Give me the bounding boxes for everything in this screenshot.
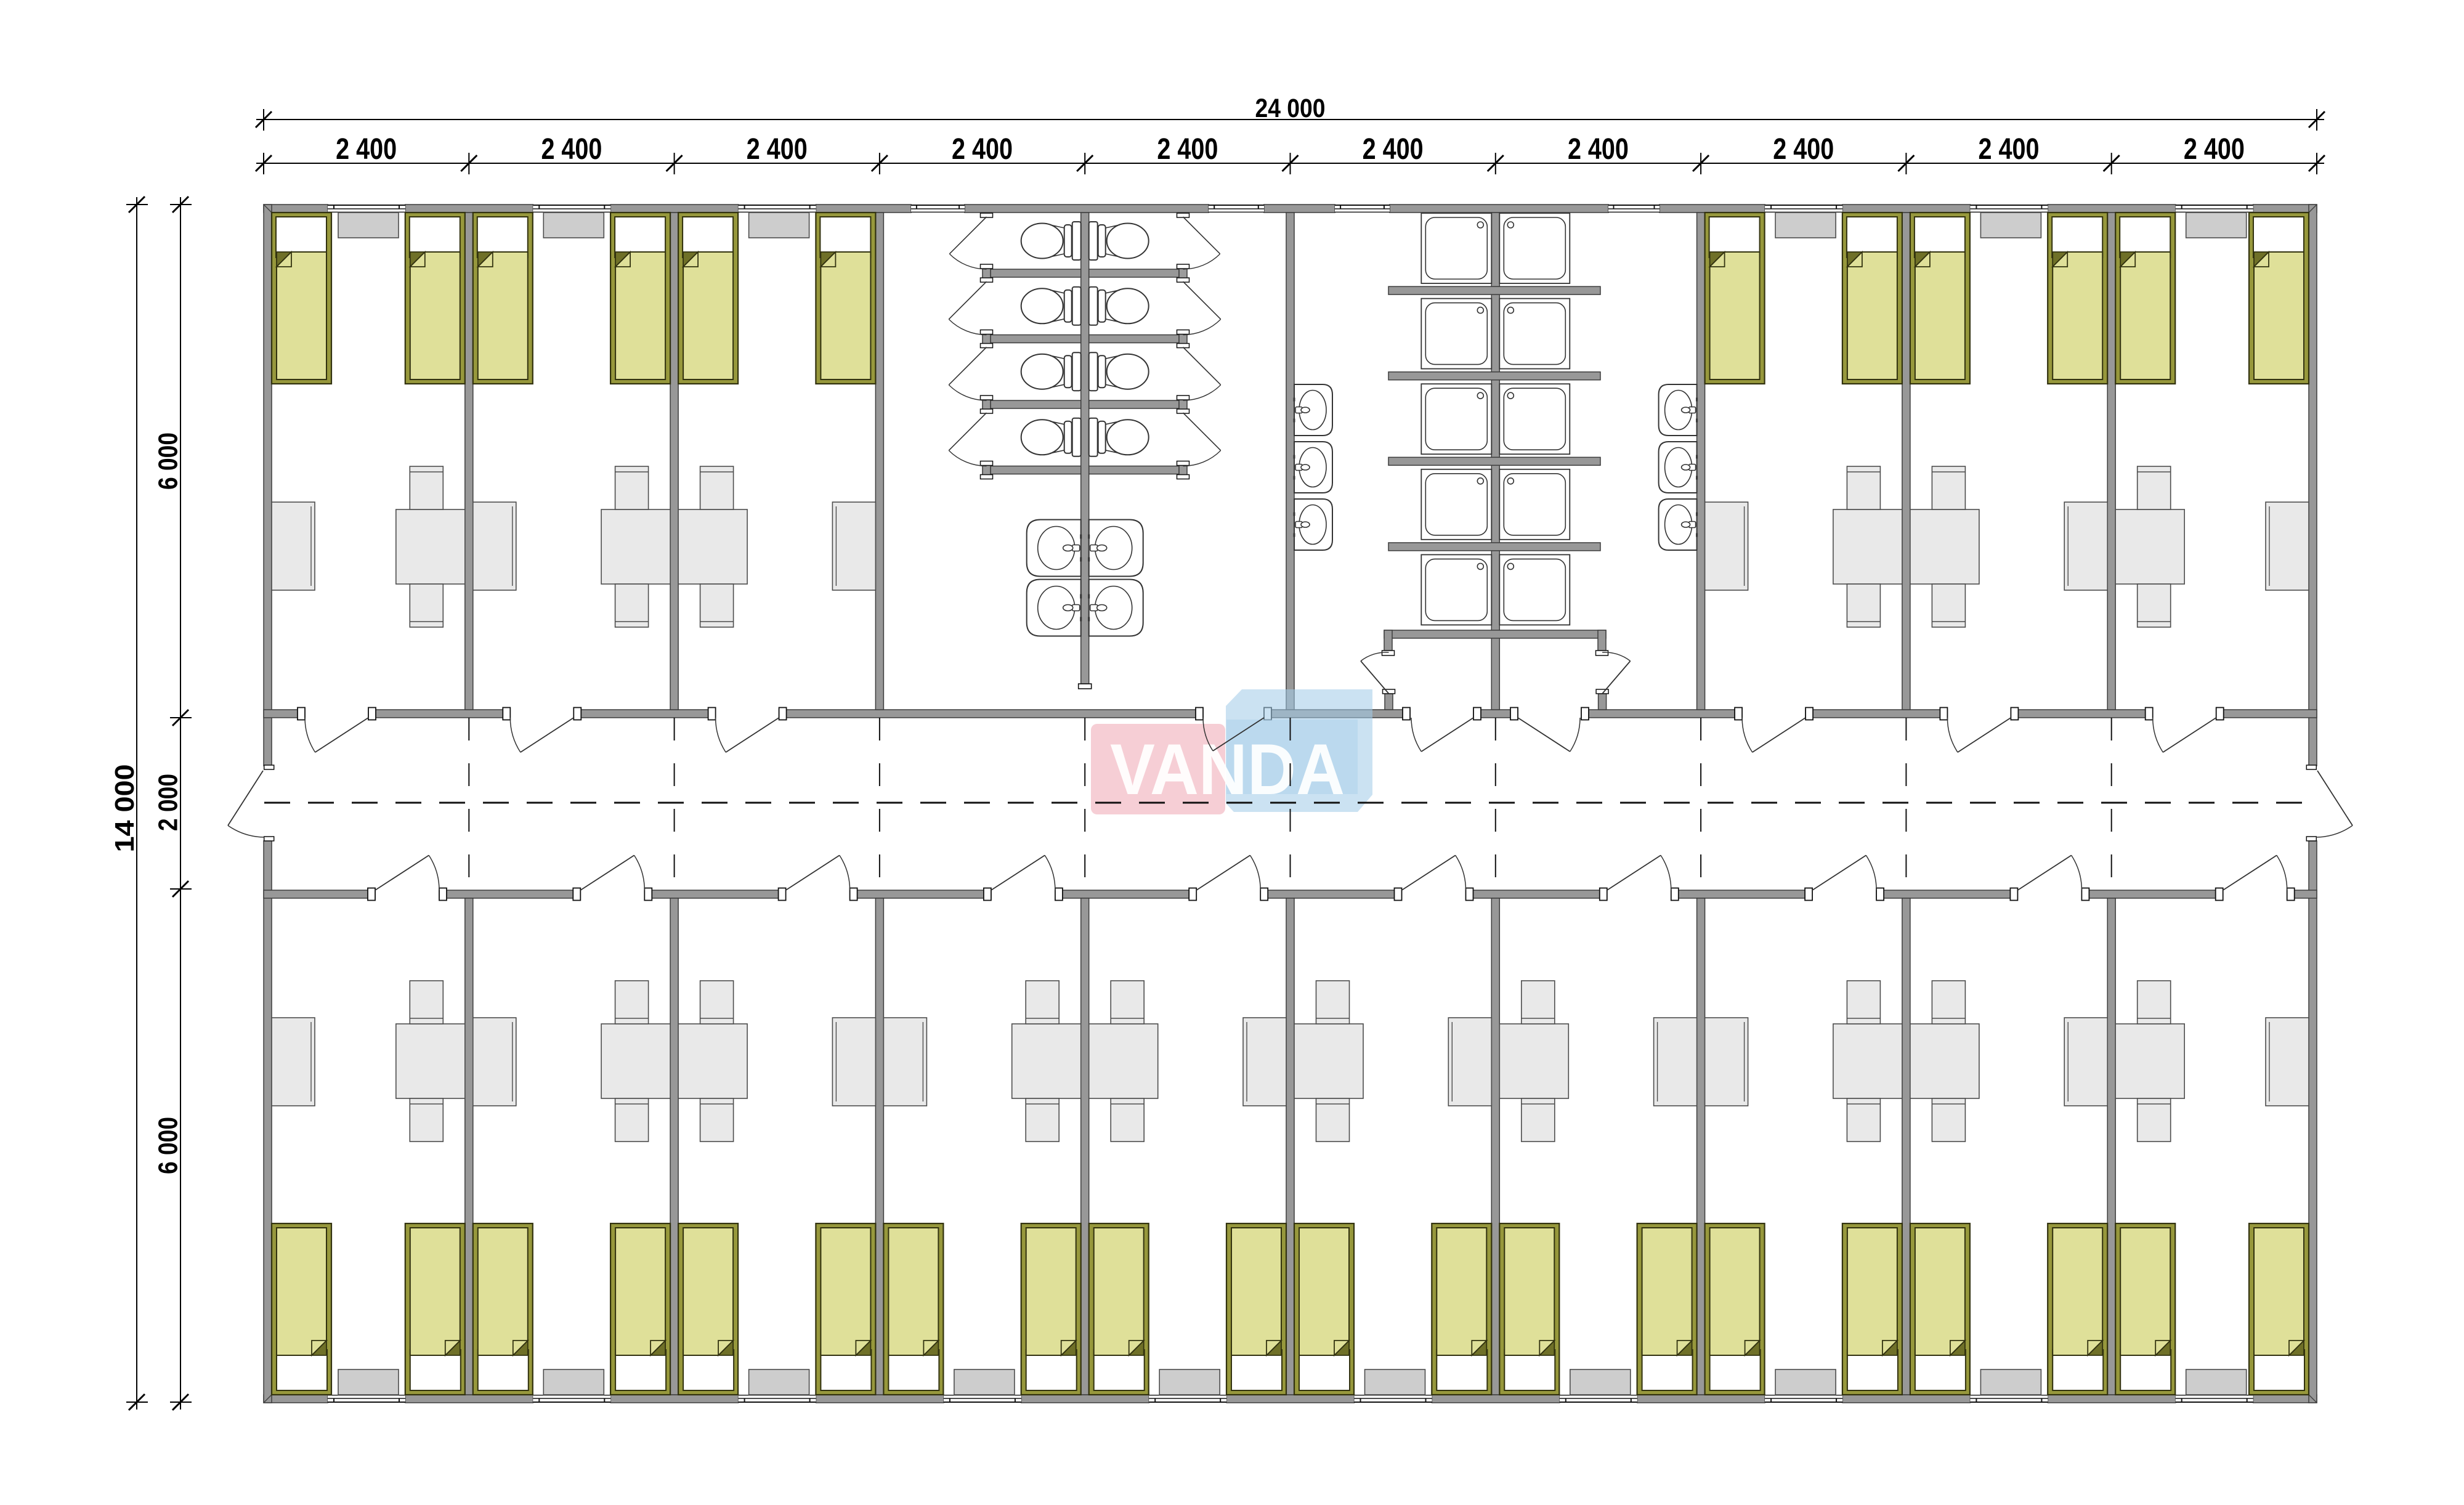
svg-text:2 400: 2 400 <box>2184 133 2245 166</box>
svg-text:2 400: 2 400 <box>1157 133 1218 166</box>
svg-text:2 400: 2 400 <box>952 133 1013 166</box>
svg-text:6 000: 6 000 <box>153 1117 184 1174</box>
svg-text:2 000: 2 000 <box>153 774 184 831</box>
svg-text:14 000: 14 000 <box>110 765 140 853</box>
svg-text:2 400: 2 400 <box>1568 133 1629 166</box>
svg-text:2 400: 2 400 <box>541 133 602 166</box>
svg-text:2 400: 2 400 <box>1363 133 1424 166</box>
svg-text:24 000: 24 000 <box>1255 94 1326 123</box>
svg-text:2 400: 2 400 <box>1979 133 2040 166</box>
svg-text:2 400: 2 400 <box>747 133 808 166</box>
svg-text:6 000: 6 000 <box>153 432 184 490</box>
svg-text:2 400: 2 400 <box>336 133 397 166</box>
svg-text:2 400: 2 400 <box>1773 133 1834 166</box>
